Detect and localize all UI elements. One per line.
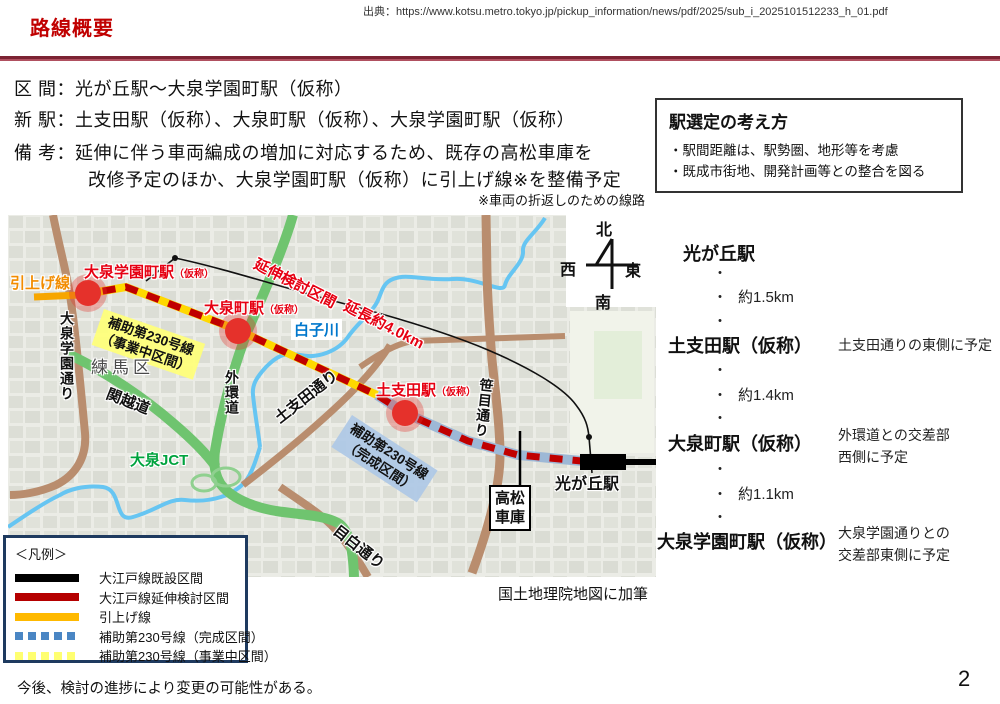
route-map: 引上げ線 大泉学園町駅（仮称） 補助第230号線（事業中区間） 大泉町駅（仮称）…	[8, 215, 656, 577]
hikarigaoka-station-label: 光が丘駅	[555, 470, 619, 494]
section-line: 区 間：光が丘駅～大泉学園町駅（仮称）	[14, 75, 353, 101]
gaikan-expwy-label: 外環道	[222, 370, 242, 415]
legend-item-ongoing: 補助第230号線（事業中区間）	[15, 646, 245, 666]
legend-swatch-extension	[15, 593, 79, 601]
legend-label: 補助第230号線（完成区間）	[99, 627, 264, 646]
seq-note-oizumigakuencho: 大泉学園通りとの 交差部東側に予定	[838, 522, 950, 566]
legend-item-pullout: 引上げ線	[15, 607, 245, 627]
seq-note-toshida: 土支田通りの東側に予定	[838, 334, 992, 356]
legend-label: 補助第230号線（事業中区間）	[99, 646, 277, 665]
station-selection-box: 駅選定の考え方 ・駅間距離は、駅勢圏、地形等を考慮 ・既成市街地、開発計画等との…	[655, 98, 963, 193]
legend-swatch-existing	[15, 574, 79, 582]
legend-swatch-completed	[15, 632, 79, 640]
seq-dot: ・	[713, 507, 727, 527]
section-value: 光が丘駅～大泉学園町駅（仮称）	[75, 79, 353, 99]
seq-distance-2: 約1.4km	[738, 384, 794, 405]
oizumi-gakuen-dori-label: 大泉学園通り	[57, 311, 77, 401]
remarks-line2: 改修予定のほか、大泉学園町駅（仮称）に引上げ線※を整備予定	[88, 166, 621, 192]
legend-box: ＜凡例＞ 大江戸線既設区間 大江戸線延伸検討区間 引上げ線 補助第230号線（完…	[3, 535, 248, 663]
new-stations-label: 新 駅：	[14, 106, 75, 132]
header-divider	[0, 56, 1000, 61]
section-label: 区 間：	[14, 75, 75, 101]
legend-item-existing: 大江戸線既設区間	[15, 568, 245, 588]
seq-dot: ・	[713, 459, 727, 479]
takamatsu-depot-label: 高松 車庫	[489, 485, 531, 531]
compass-north-label: 北	[596, 216, 612, 240]
seq-station-oizumigakuencho: 大泉学園町駅（仮称）	[657, 528, 837, 554]
shirako-river-label: 白子川	[291, 319, 342, 340]
new-stations-value: 土支田駅（仮称）、大泉町駅（仮称）、大泉学園町駅（仮称）	[75, 110, 575, 130]
seq-dot: ・	[713, 484, 727, 504]
map-caption: 国土地理院地図に加筆	[498, 583, 648, 604]
station-dot-toshida	[392, 400, 418, 426]
kasho-suffix: （仮称）	[436, 387, 476, 398]
station-dot-oizumigakuencho	[75, 280, 101, 306]
seq-note-oizumimachi: 外環道との交差部 西側に予定	[838, 424, 950, 468]
page-title: 路線概要	[30, 12, 114, 41]
compass-west-label: 西	[560, 256, 576, 280]
legend-item-completed: 補助第230号線（完成区間）	[15, 627, 245, 647]
oizumigakuencho-station-name: 大泉学園町駅	[84, 264, 174, 281]
seq-distance-1: 約1.5km	[738, 286, 794, 307]
new-stations-line: 新 駅：土支田駅（仮称）、大泉町駅（仮称）、大泉学園町駅（仮称）	[14, 106, 575, 132]
seq-dot: ・	[713, 360, 727, 380]
park-green-area	[594, 331, 642, 399]
footer-note: 今後、検討の進捗により変更の可能性がある。	[17, 677, 321, 698]
seq-dot: ・	[713, 287, 727, 307]
toshida-station-label: 土支田駅（仮称）	[376, 379, 476, 400]
seq-distance-3: 約1.1km	[738, 483, 794, 504]
boundary-dot	[586, 434, 592, 440]
oizumi-jct-label: 大泉JCT	[130, 449, 188, 470]
kasho-suffix: （仮称）	[264, 305, 304, 316]
legend-swatch-ongoing	[15, 652, 79, 660]
legend-label: 大江戸線既設区間	[99, 568, 203, 587]
seq-station-oizumimachi: 大泉町駅（仮称）	[668, 430, 812, 456]
seq-dot: ・	[713, 311, 727, 331]
seq-dot: ・	[713, 263, 727, 283]
legend-title: ＜凡例＞	[15, 544, 245, 563]
oizumimachi-station-label: 大泉町駅（仮称）	[204, 297, 304, 318]
hikarigaoka-station-box	[580, 454, 626, 470]
pullout-line-label: 引上げ線	[10, 272, 70, 293]
seq-dot: ・	[713, 385, 727, 405]
kasho-suffix: （仮称）	[174, 269, 214, 280]
oizumigakuencho-station-label: 大泉学園町駅（仮称）	[84, 261, 214, 282]
selection-box-title: 駅選定の考え方	[669, 108, 951, 133]
selection-point-1: ・駅間距離は、駅勢圏、地形等を考慮	[669, 140, 951, 161]
station-dot-oizumimachi	[225, 318, 251, 344]
legend-item-extension: 大江戸線延伸検討区間	[15, 588, 245, 608]
selection-point-2: ・既成市街地、開発計画等との整合を図る	[669, 161, 951, 182]
remarks-footnote: ※車両の折返しのための線路	[455, 190, 645, 209]
legend-swatch-pullout	[15, 613, 79, 621]
page-number: 2	[958, 666, 970, 692]
source-url[interactable]: 出典：https://www.kotsu.metro.tokyo.jp/pick…	[363, 3, 888, 19]
nerima-ward-label: 練馬区	[91, 353, 154, 378]
toshida-station-name: 土支田駅	[376, 382, 436, 399]
seq-station-toshida: 土支田駅（仮称）	[668, 332, 812, 358]
remarks-value1: 延伸に伴う車両編成の増加に対応するため、既存の高松車庫を	[75, 143, 593, 163]
remarks-label: 備 考：	[14, 139, 75, 165]
remarks-line1: 備 考：延伸に伴う車両編成の増加に対応するため、既存の高松車庫を	[14, 139, 593, 165]
oizumimachi-station-name: 大泉町駅	[204, 300, 264, 317]
legend-label: 大江戸線延伸検討区間	[99, 588, 229, 607]
compass-east-label: 東	[625, 257, 641, 281]
legend-label: 引上げ線	[99, 607, 151, 626]
seq-dot: ・	[713, 408, 727, 428]
compass-south-label: 南	[595, 289, 611, 313]
